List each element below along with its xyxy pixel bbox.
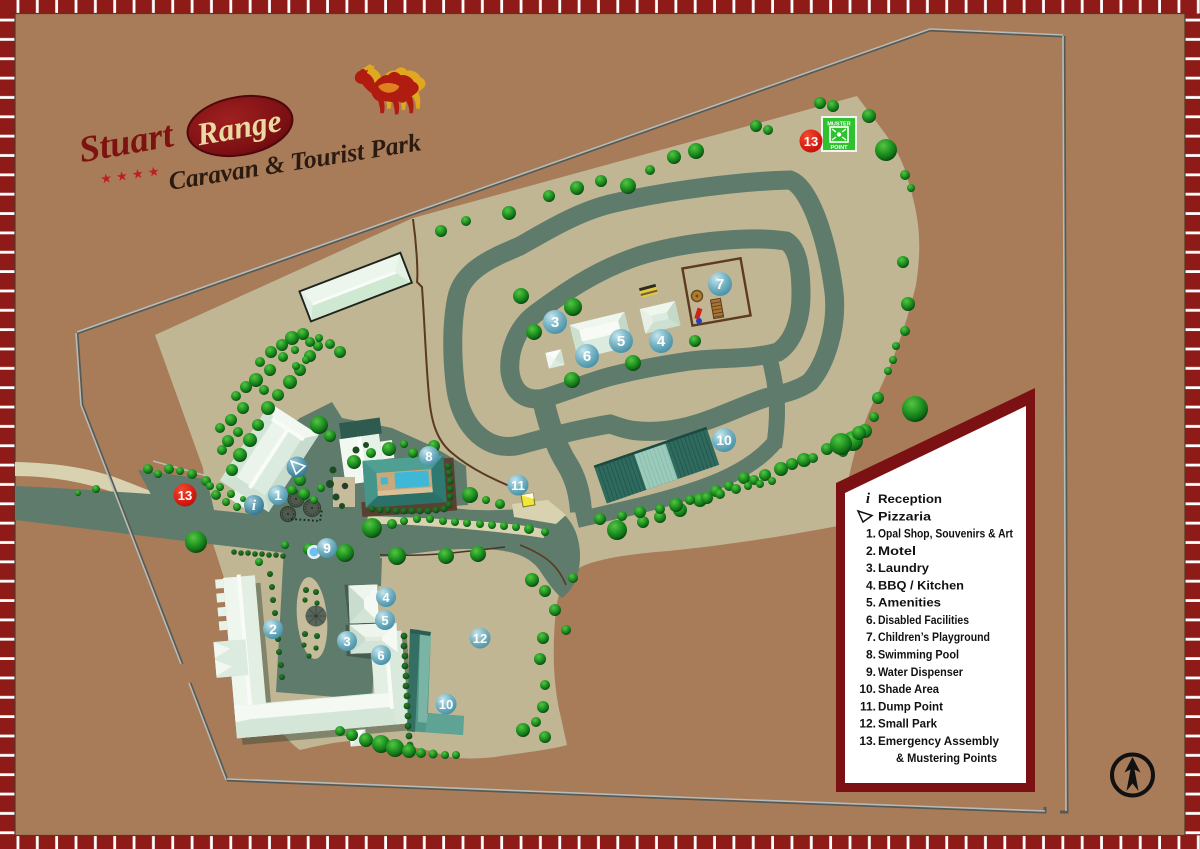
svg-text:6: 6 [377,648,384,663]
svg-text:& Mustering Points: & Mustering Points [896,751,997,765]
svg-text:11.: 11. [860,699,876,713]
svg-text:4: 4 [657,333,666,350]
svg-text:Dump Point: Dump Point [878,699,943,713]
svg-text:10.: 10. [859,682,876,696]
svg-text:BBQ / Kitchen: BBQ / Kitchen [878,578,964,592]
svg-text:2.: 2. [866,544,876,558]
svg-text:10: 10 [716,432,732,448]
svg-text:3.: 3. [866,561,876,575]
svg-text:1: 1 [274,487,282,503]
svg-text:★: ★ [115,168,129,184]
svg-text:5: 5 [381,613,388,628]
svg-text:Water Dispenser: Water Dispenser [878,665,963,679]
svg-text:4: 4 [382,590,390,605]
svg-text:8.: 8. [866,648,876,662]
svg-text:9.: 9. [866,665,876,679]
svg-text:★: ★ [147,163,161,179]
svg-text:13: 13 [178,488,192,503]
svg-text:★: ★ [131,166,145,182]
svg-text:Children’s Playground: Children’s Playground [878,630,990,644]
svg-text:12: 12 [473,631,487,646]
svg-text:POINT: POINT [830,145,848,151]
svg-text:7.: 7. [866,630,876,644]
svg-text:★: ★ [99,170,113,186]
svg-text:Reception: Reception [878,492,942,506]
svg-text:5.: 5. [866,596,876,610]
svg-text:13: 13 [804,134,818,149]
svg-text:Laundry: Laundry [878,561,929,575]
svg-text:13.: 13. [859,734,876,748]
svg-text:Shade Area: Shade Area [878,682,939,696]
svg-text:2: 2 [269,621,277,637]
svg-text:Emergency Assembly: Emergency Assembly [878,734,999,748]
svg-text:Swimming Pool: Swimming Pool [878,648,959,662]
svg-text:3: 3 [551,314,559,331]
svg-text:7: 7 [716,276,724,293]
svg-text:Opal Shop, Souvenirs & Art: Opal Shop, Souvenirs & Art [878,527,1013,541]
svg-text:Small Park: Small Park [878,717,937,731]
svg-text:Motel: Motel [878,544,916,558]
svg-text:9: 9 [323,540,331,556]
svg-text:1.: 1. [866,527,876,541]
svg-text:6.: 6. [866,613,876,627]
svg-text:Amenities: Amenities [878,596,941,610]
svg-text:12.: 12. [859,717,876,731]
svg-text:Disabled Facilities: Disabled Facilities [878,613,969,627]
svg-text:10: 10 [439,697,453,712]
svg-text:5: 5 [617,333,625,350]
svg-text:6: 6 [583,348,591,365]
svg-text:11: 11 [511,478,525,493]
svg-text:8: 8 [425,449,432,464]
svg-text:Pizzaria: Pizzaria [878,509,931,523]
svg-text:4.: 4. [866,578,876,592]
svg-text:3: 3 [343,634,350,649]
